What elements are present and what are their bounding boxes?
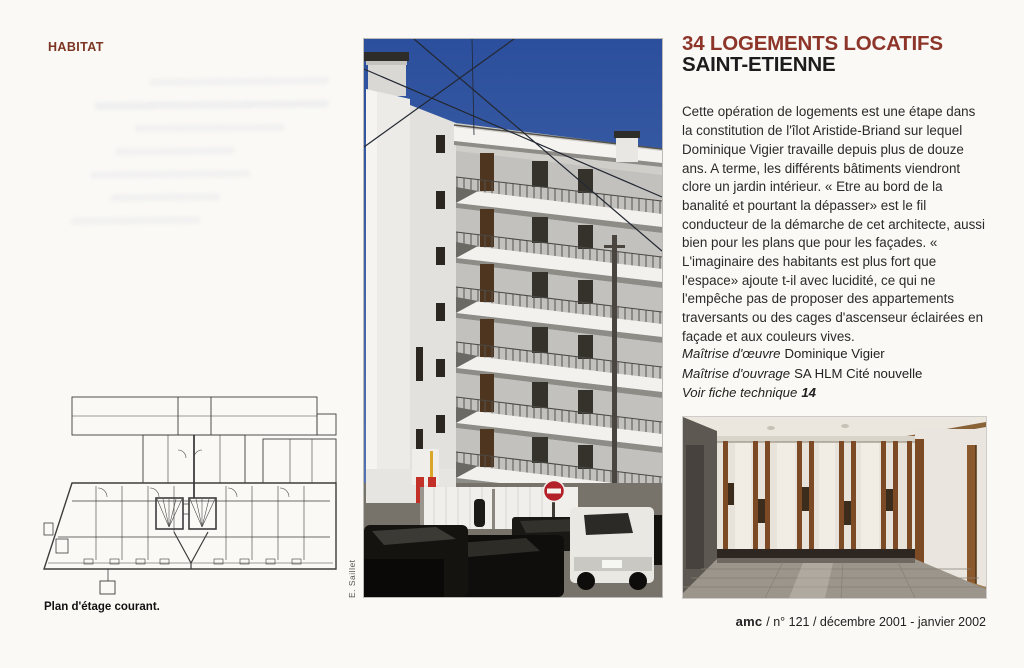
photo-credit: E. Saillet bbox=[347, 559, 357, 598]
article-title: 34 LOGEMENTS LOCATIFS bbox=[682, 33, 943, 54]
credit-fiche-technique: Voir fiche technique14 bbox=[682, 383, 988, 403]
article-subtitle: SAINT-ETIENNE bbox=[682, 54, 943, 75]
credit-maitrise-ouvrage: Maîtrise d'ouvrageSA HLM Cité nouvelle bbox=[682, 364, 988, 384]
credit-maitrise-oeuvre: Maîtrise d'œuvreDominique Vigier bbox=[682, 344, 988, 364]
page-footer: amc/ n° 121 / décembre 2001 - janvier 20… bbox=[682, 614, 986, 629]
magazine-name: amc bbox=[736, 614, 763, 629]
balconies bbox=[456, 151, 662, 508]
issue-info: / n° 121 / décembre 2001 - janvier 2002 bbox=[766, 615, 986, 629]
interior-partition bbox=[717, 436, 915, 559]
article-body: Cette opération de logements est une éta… bbox=[682, 103, 988, 346]
interior-photo bbox=[683, 417, 986, 598]
plan-caption: Plan d'étage courant. bbox=[44, 601, 160, 613]
page-showthrough bbox=[54, 76, 346, 269]
floor-plan-figure bbox=[28, 390, 346, 601]
credits-block: Maîtrise d'œuvreDominique Vigier Maîtris… bbox=[682, 344, 988, 403]
building-photo bbox=[364, 39, 662, 597]
article-title-block: 34 LOGEMENTS LOCATIFS SAINT-ETIENNE bbox=[682, 33, 943, 75]
section-label: HABITAT bbox=[48, 40, 104, 54]
floor-plan-drawing bbox=[28, 390, 346, 596]
